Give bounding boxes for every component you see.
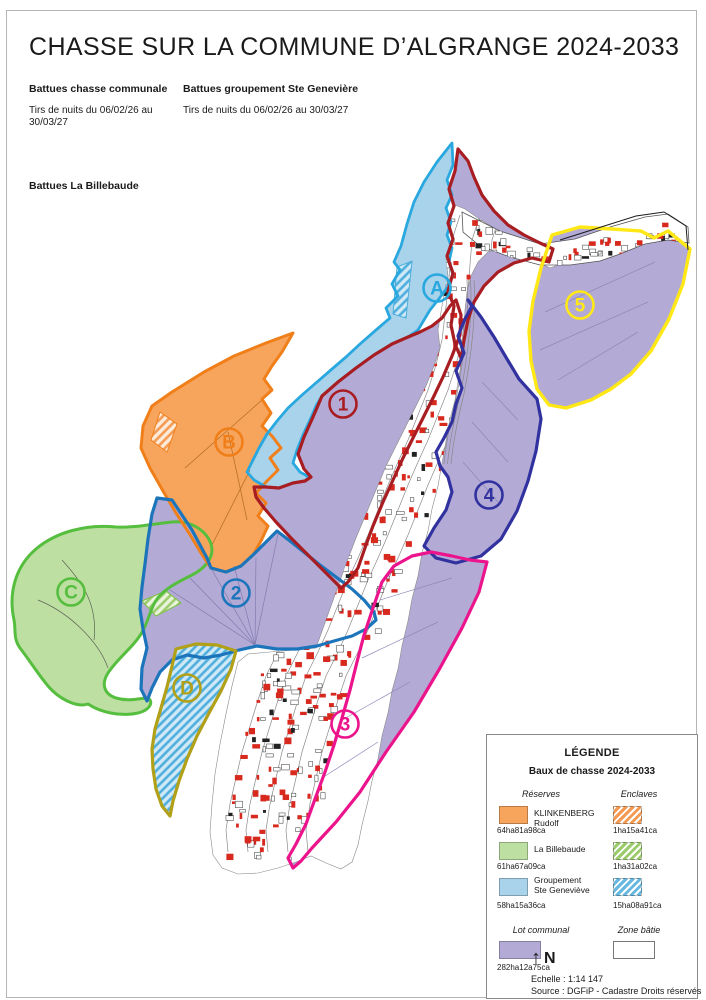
legend-reserves-heading: Réserves — [503, 789, 579, 799]
legend-enclaves-heading: Enclaves — [601, 789, 677, 799]
zone-label-1-text: 1 — [338, 395, 349, 416]
zone-label-b-text: B — [222, 433, 236, 454]
legend-area-enclave-klinkenberg: 1ha15a41ca — [613, 826, 657, 835]
legend-area-billebaude: 61ha67a09ca — [497, 862, 546, 871]
legend-swatch-enclave-billebaude — [613, 842, 642, 860]
legend-swatch-zone-batie — [613, 941, 655, 959]
north-label: N — [544, 950, 556, 967]
north-indicator: ↑N — [531, 947, 556, 970]
legend-box: LÉGENDE Baux de chasse 2024-2033 Réserve… — [486, 734, 698, 999]
legend-label-groupement: Groupement Ste Geneviève — [534, 876, 596, 896]
zone-label-3-text: 3 — [340, 715, 351, 736]
zone-label-c-text: C — [64, 583, 78, 604]
legend-area-enclave-billebaude: 1ha31a02ca — [613, 862, 657, 871]
legend-zone-batie-heading: Zone bâtie — [601, 925, 677, 935]
legend-swatch-groupement — [499, 878, 528, 896]
legend-swatch-enclave-klinkenberg — [613, 806, 642, 824]
legend-area-groupement: 58ha15a36ca — [497, 901, 546, 910]
legend-area-enclave-groupement: 15ha08a91ca — [613, 901, 662, 910]
legend-subtitle: Baux de chasse 2024-2033 — [487, 766, 697, 777]
legend-swatch-klinkenberg — [499, 806, 528, 824]
zone-label-2-text: 2 — [231, 584, 242, 605]
legend-area-klinkenberg: 64ha81a98ca — [497, 826, 546, 835]
legend-swatch-enclave-groupement — [613, 878, 642, 896]
zone-label-5-text: 5 — [575, 296, 586, 317]
north-arrow-icon: ↑ — [531, 947, 541, 969]
legend-label-billebaude: La Billebaude — [534, 845, 606, 855]
scale-text: Echelle : 1:14 147 — [531, 974, 603, 984]
map-sheet: CHASSE SUR LA COMMUNE D’ALGRANGE 2024-20… — [0, 0, 706, 1000]
legend-title: LÉGENDE — [487, 747, 697, 759]
zone-label-4-text: 4 — [484, 486, 495, 507]
zone-label-a-text: A — [430, 279, 444, 300]
source-text: Source : DGFiP - Cadastre Droits réservé… — [531, 986, 701, 996]
zone-label-d-text: D — [180, 679, 194, 700]
legend-lot-heading: Lot communal — [499, 925, 583, 935]
legend-swatch-billebaude — [499, 842, 528, 860]
